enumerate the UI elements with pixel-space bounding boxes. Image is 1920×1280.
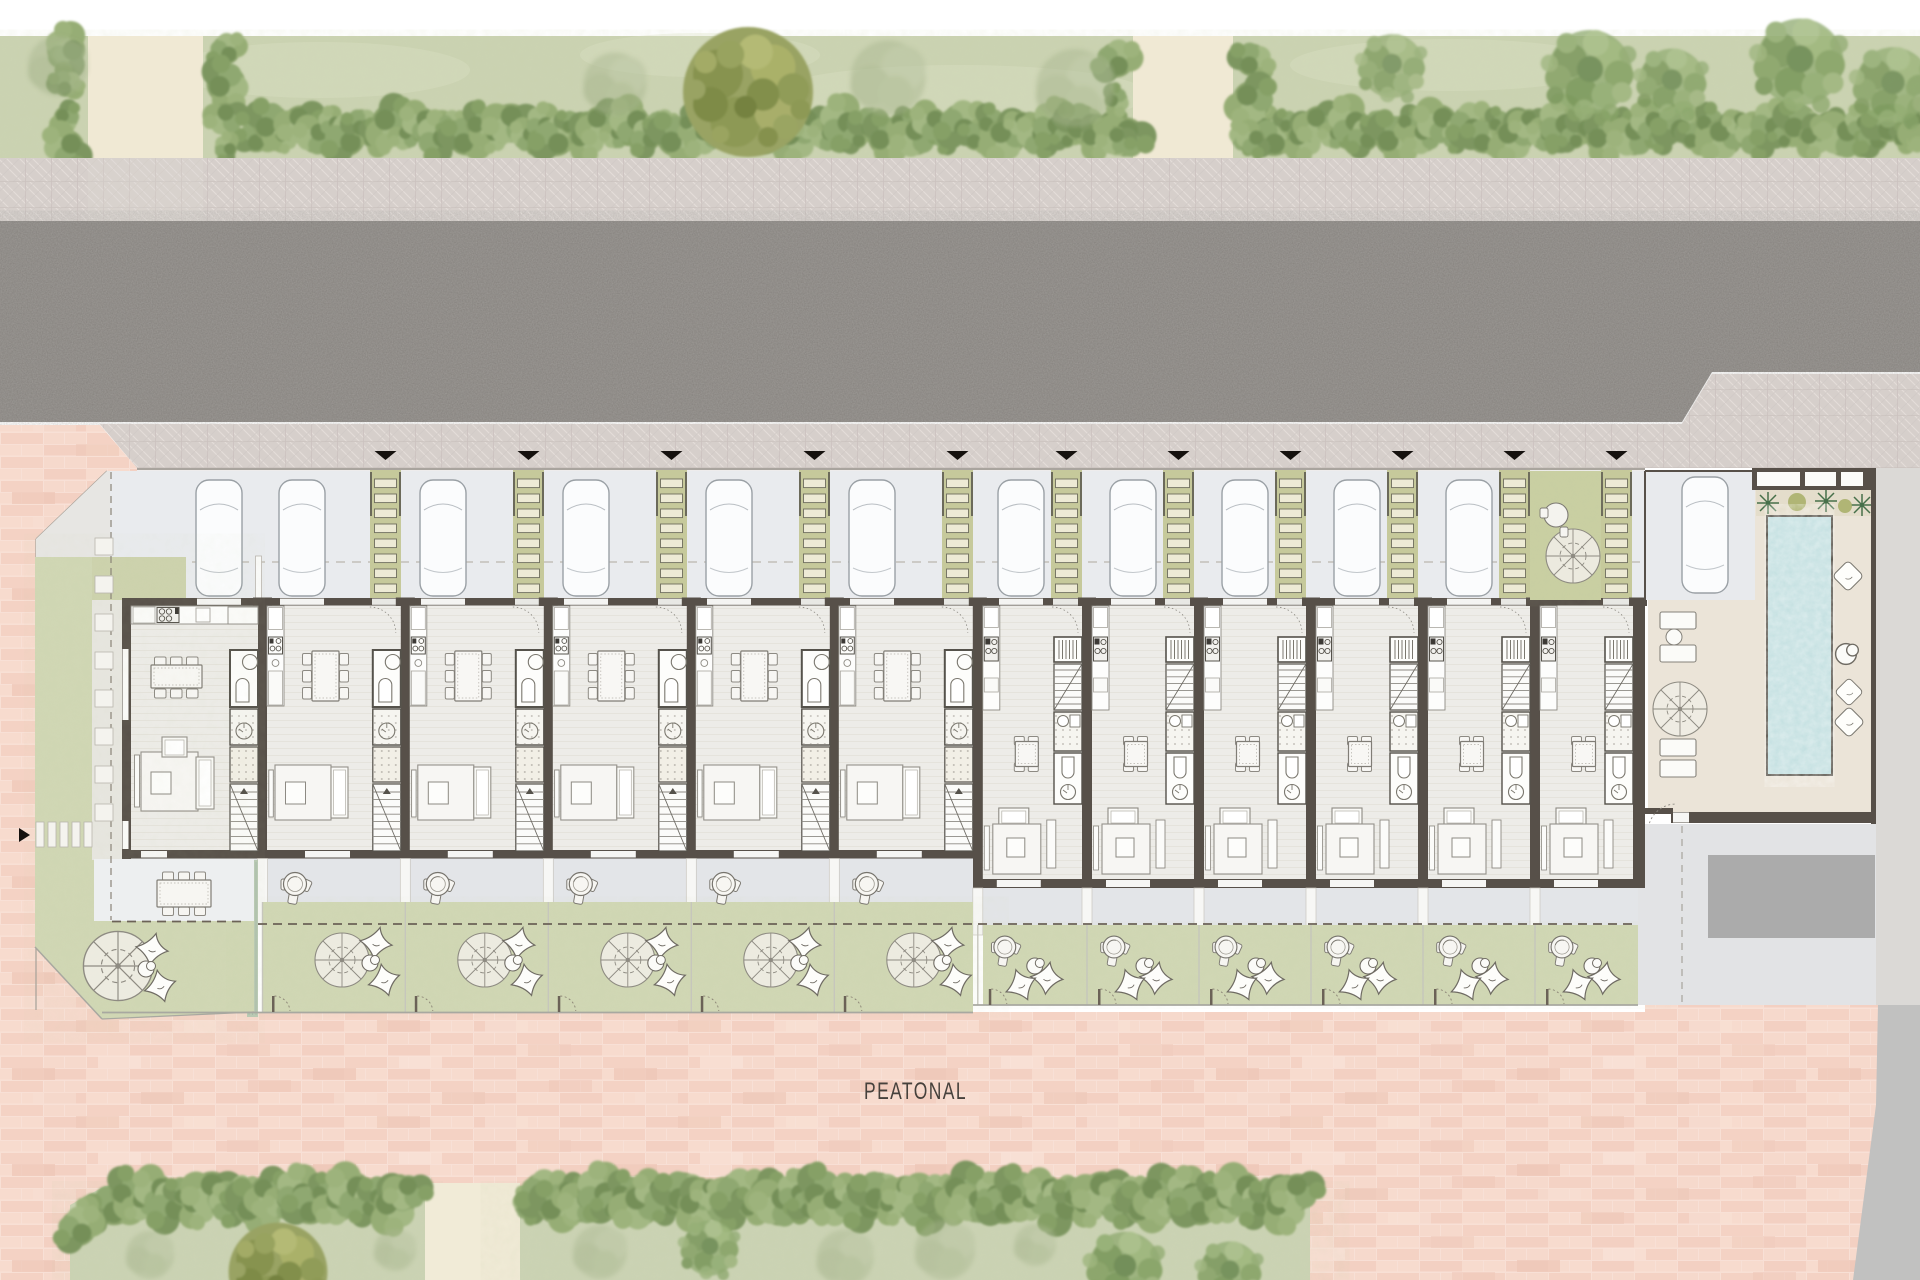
svg-text:PEATONAL: PEATONAL <box>864 1078 967 1105</box>
